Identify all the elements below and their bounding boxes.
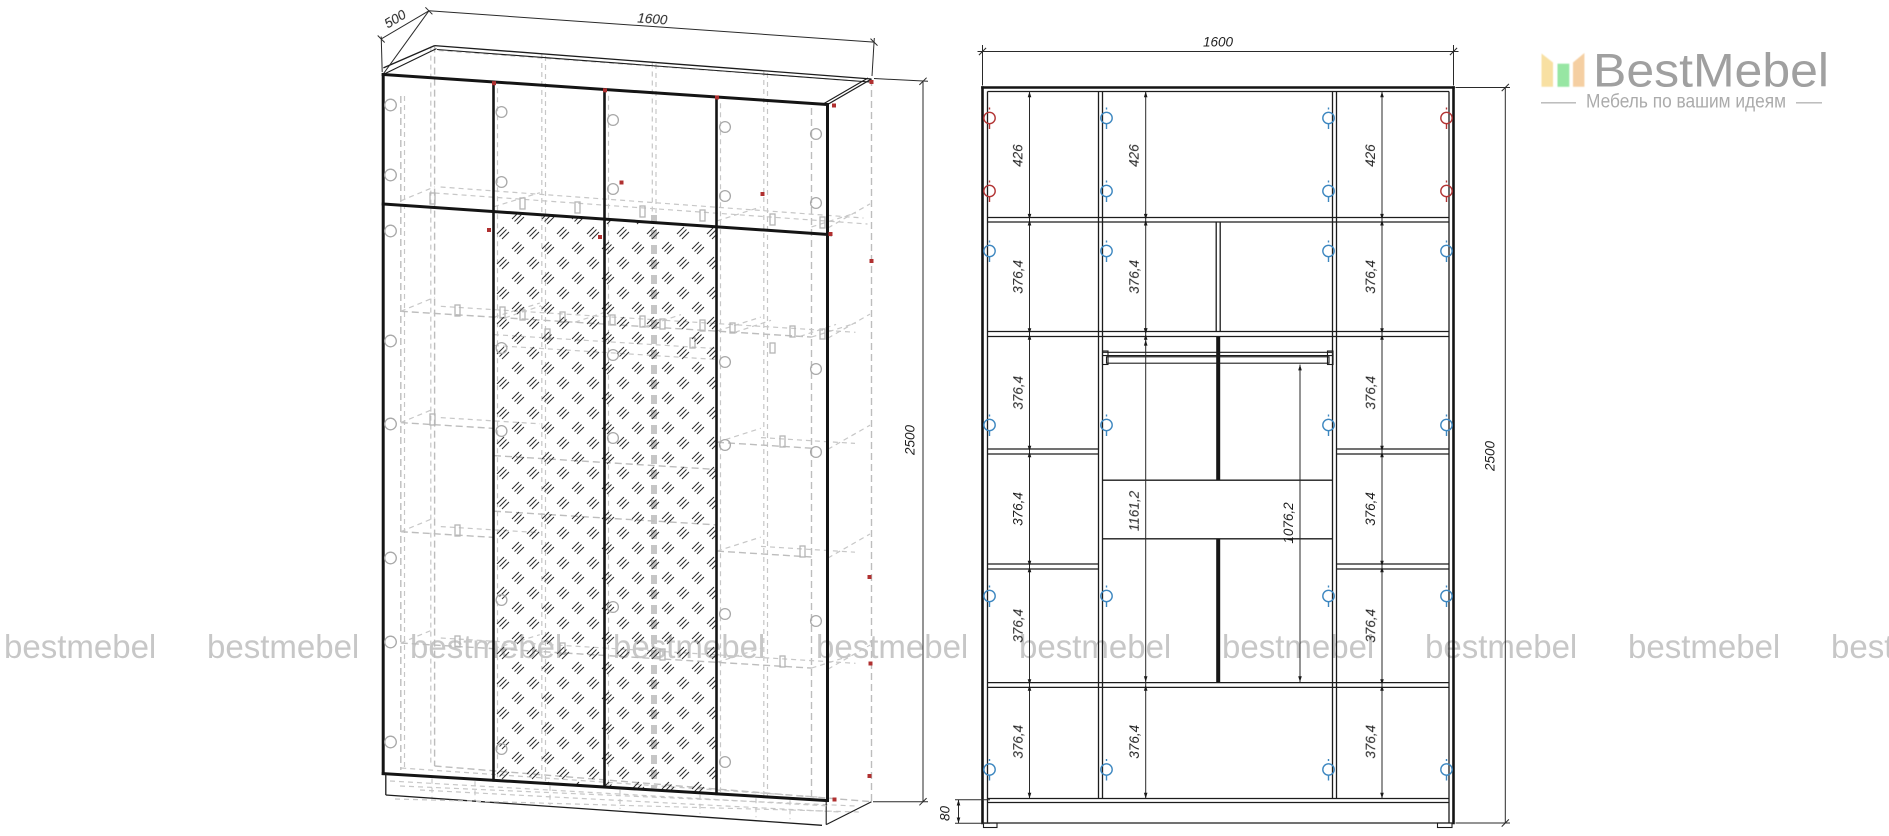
svg-text:426: 426: [1127, 144, 1142, 167]
svg-text:376,4: 376,4: [1363, 609, 1378, 643]
svg-text:BestMebel: BestMebel: [1593, 44, 1829, 97]
svg-text:bestmebel: bestmebel: [1019, 628, 1171, 665]
svg-text:1161,2: 1161,2: [1127, 490, 1142, 531]
svg-text:bestmebel: bestmebel: [1831, 628, 1889, 665]
svg-text:376,4: 376,4: [1363, 492, 1378, 526]
svg-text:376,4: 376,4: [1127, 260, 1142, 294]
svg-text:bestmebel: bestmebel: [207, 628, 359, 665]
svg-text:376,4: 376,4: [1363, 725, 1378, 759]
svg-text:376,4: 376,4: [1011, 609, 1026, 643]
svg-text:1076,2: 1076,2: [1281, 502, 1296, 544]
svg-text:1600: 1600: [1203, 35, 1234, 50]
svg-text:426: 426: [1363, 144, 1378, 167]
svg-text:bestmebel: bestmebel: [1222, 628, 1374, 665]
svg-text:426: 426: [1011, 144, 1026, 167]
svg-text:1600: 1600: [637, 10, 669, 27]
svg-text:bestmebel: bestmebel: [4, 628, 156, 665]
svg-text:376,4: 376,4: [1011, 260, 1026, 294]
svg-text:2500: 2500: [903, 424, 918, 456]
svg-text:2500: 2500: [1483, 440, 1498, 472]
svg-text:376,4: 376,4: [1363, 376, 1378, 410]
svg-text:376,4: 376,4: [1011, 725, 1026, 759]
svg-text:376,4: 376,4: [1127, 725, 1142, 759]
svg-text:376,4: 376,4: [1363, 260, 1378, 294]
svg-text:Мебель по вашим идеям: Мебель по вашим идеям: [1586, 92, 1786, 113]
svg-text:80: 80: [938, 806, 953, 822]
svg-text:bestmebel: bestmebel: [1425, 628, 1577, 665]
svg-text:bestmebel: bestmebel: [1628, 628, 1780, 665]
svg-text:376,4: 376,4: [1011, 492, 1026, 526]
svg-text:376,4: 376,4: [1011, 376, 1026, 410]
